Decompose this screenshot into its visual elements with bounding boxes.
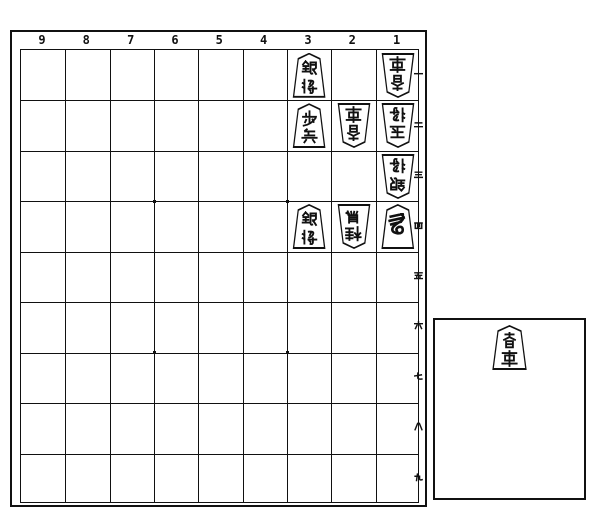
file-label: 2 xyxy=(330,33,374,47)
rank-label-glyph xyxy=(414,422,423,431)
rank-label xyxy=(414,321,423,330)
file-label: 5 xyxy=(197,33,241,47)
grid-line-vertical xyxy=(287,50,288,502)
shogi-piece-silver-general[interactable] xyxy=(290,53,328,98)
grid-line-horizontal xyxy=(21,454,418,455)
piece-kanji-glyph xyxy=(345,225,362,242)
shogi-piece-lance[interactable] xyxy=(490,325,530,370)
rank-label-glyph xyxy=(414,271,423,280)
shogi-board: 987654321 xyxy=(10,30,427,507)
star-point xyxy=(286,351,289,354)
shogi-piece-knight[interactable] xyxy=(335,204,373,249)
rank-label xyxy=(414,69,423,78)
shogi-piece-promoted-bishop[interactable] xyxy=(379,204,417,249)
rank-label-glyph xyxy=(414,120,423,129)
rank-label-glyph xyxy=(414,321,423,330)
piece-kanji-glyph xyxy=(301,78,318,95)
rank-label-glyph xyxy=(414,69,423,78)
piece-kanji-glyph xyxy=(301,229,318,246)
file-label: 7 xyxy=(109,33,153,47)
piece-kanji-glyph xyxy=(389,74,406,91)
rank-label-glyph xyxy=(414,473,423,482)
shogi-diagram: 987654321 xyxy=(0,0,600,521)
grid-line-vertical xyxy=(65,50,66,502)
file-label: 9 xyxy=(20,33,64,47)
piece-kanji xyxy=(290,211,328,246)
file-label: 3 xyxy=(286,33,330,47)
piece-kanji-glyph xyxy=(389,56,406,73)
piece-kanji-glyph xyxy=(389,124,406,141)
piece-kanji-glyph xyxy=(301,60,318,77)
shogi-piece-silver-general[interactable] xyxy=(379,154,417,199)
piece-kanji-glyph xyxy=(501,332,518,349)
piece-kanji-glyph xyxy=(389,175,406,192)
piece-kanji-glyph xyxy=(345,106,362,123)
rank-label xyxy=(414,422,423,431)
rank-label-glyph xyxy=(414,170,423,179)
grid-line-vertical xyxy=(331,50,332,502)
grid-line-horizontal xyxy=(21,151,418,152)
piece-kanji xyxy=(335,207,373,242)
grid-line-vertical xyxy=(198,50,199,502)
shogi-piece-pawn[interactable] xyxy=(290,103,328,148)
file-label: 4 xyxy=(242,33,286,47)
piece-kanji xyxy=(290,110,328,145)
piece-kanji-glyph xyxy=(301,211,318,228)
piece-kanji xyxy=(335,106,373,141)
star-point xyxy=(286,200,289,203)
grid-line-vertical xyxy=(154,50,155,502)
shogi-piece-king[interactable] xyxy=(379,103,417,148)
shogi-piece-lance[interactable] xyxy=(335,103,373,148)
grid-line-vertical xyxy=(243,50,244,502)
rank-label xyxy=(414,372,423,381)
grid-line-horizontal xyxy=(21,252,418,253)
grid-line-horizontal xyxy=(21,403,418,404)
piece-kanji xyxy=(379,106,417,141)
file-label: 1 xyxy=(375,33,419,47)
shogi-piece-lance[interactable] xyxy=(379,53,417,98)
rank-label xyxy=(414,170,423,179)
file-label: 6 xyxy=(153,33,197,47)
grid-line-horizontal xyxy=(21,353,418,354)
file-label: 8 xyxy=(64,33,108,47)
rank-label xyxy=(414,271,423,280)
piece-kanji-glyph xyxy=(501,350,518,367)
rank-label xyxy=(414,221,423,230)
piece-kanji-glyph xyxy=(345,207,362,224)
piece-kanji xyxy=(490,332,530,367)
grid-line-vertical xyxy=(376,50,377,502)
piece-kanji-glyph xyxy=(389,157,406,174)
rank-label xyxy=(414,120,423,129)
piece-kanji-glyph xyxy=(385,213,411,239)
pieces-in-hand-box xyxy=(433,318,586,500)
board-grid[interactable] xyxy=(20,49,419,503)
grid-line-horizontal xyxy=(21,100,418,101)
rank-label xyxy=(414,473,423,482)
piece-kanji-glyph xyxy=(301,128,318,145)
star-point xyxy=(153,351,156,354)
piece-kanji xyxy=(290,60,328,95)
rank-label-glyph xyxy=(414,221,423,230)
rank-label-glyph xyxy=(414,372,423,381)
piece-kanji-glyph xyxy=(301,110,318,127)
grid-line-horizontal xyxy=(21,302,418,303)
shogi-piece-silver-general[interactable] xyxy=(290,204,328,249)
grid-line-horizontal xyxy=(21,201,418,202)
grid-line-vertical xyxy=(110,50,111,502)
piece-kanji xyxy=(379,157,417,192)
piece-kanji xyxy=(379,56,417,91)
piece-kanji xyxy=(379,213,417,239)
piece-kanji-glyph xyxy=(389,106,406,123)
piece-kanji-glyph xyxy=(345,124,362,141)
star-point xyxy=(153,200,156,203)
